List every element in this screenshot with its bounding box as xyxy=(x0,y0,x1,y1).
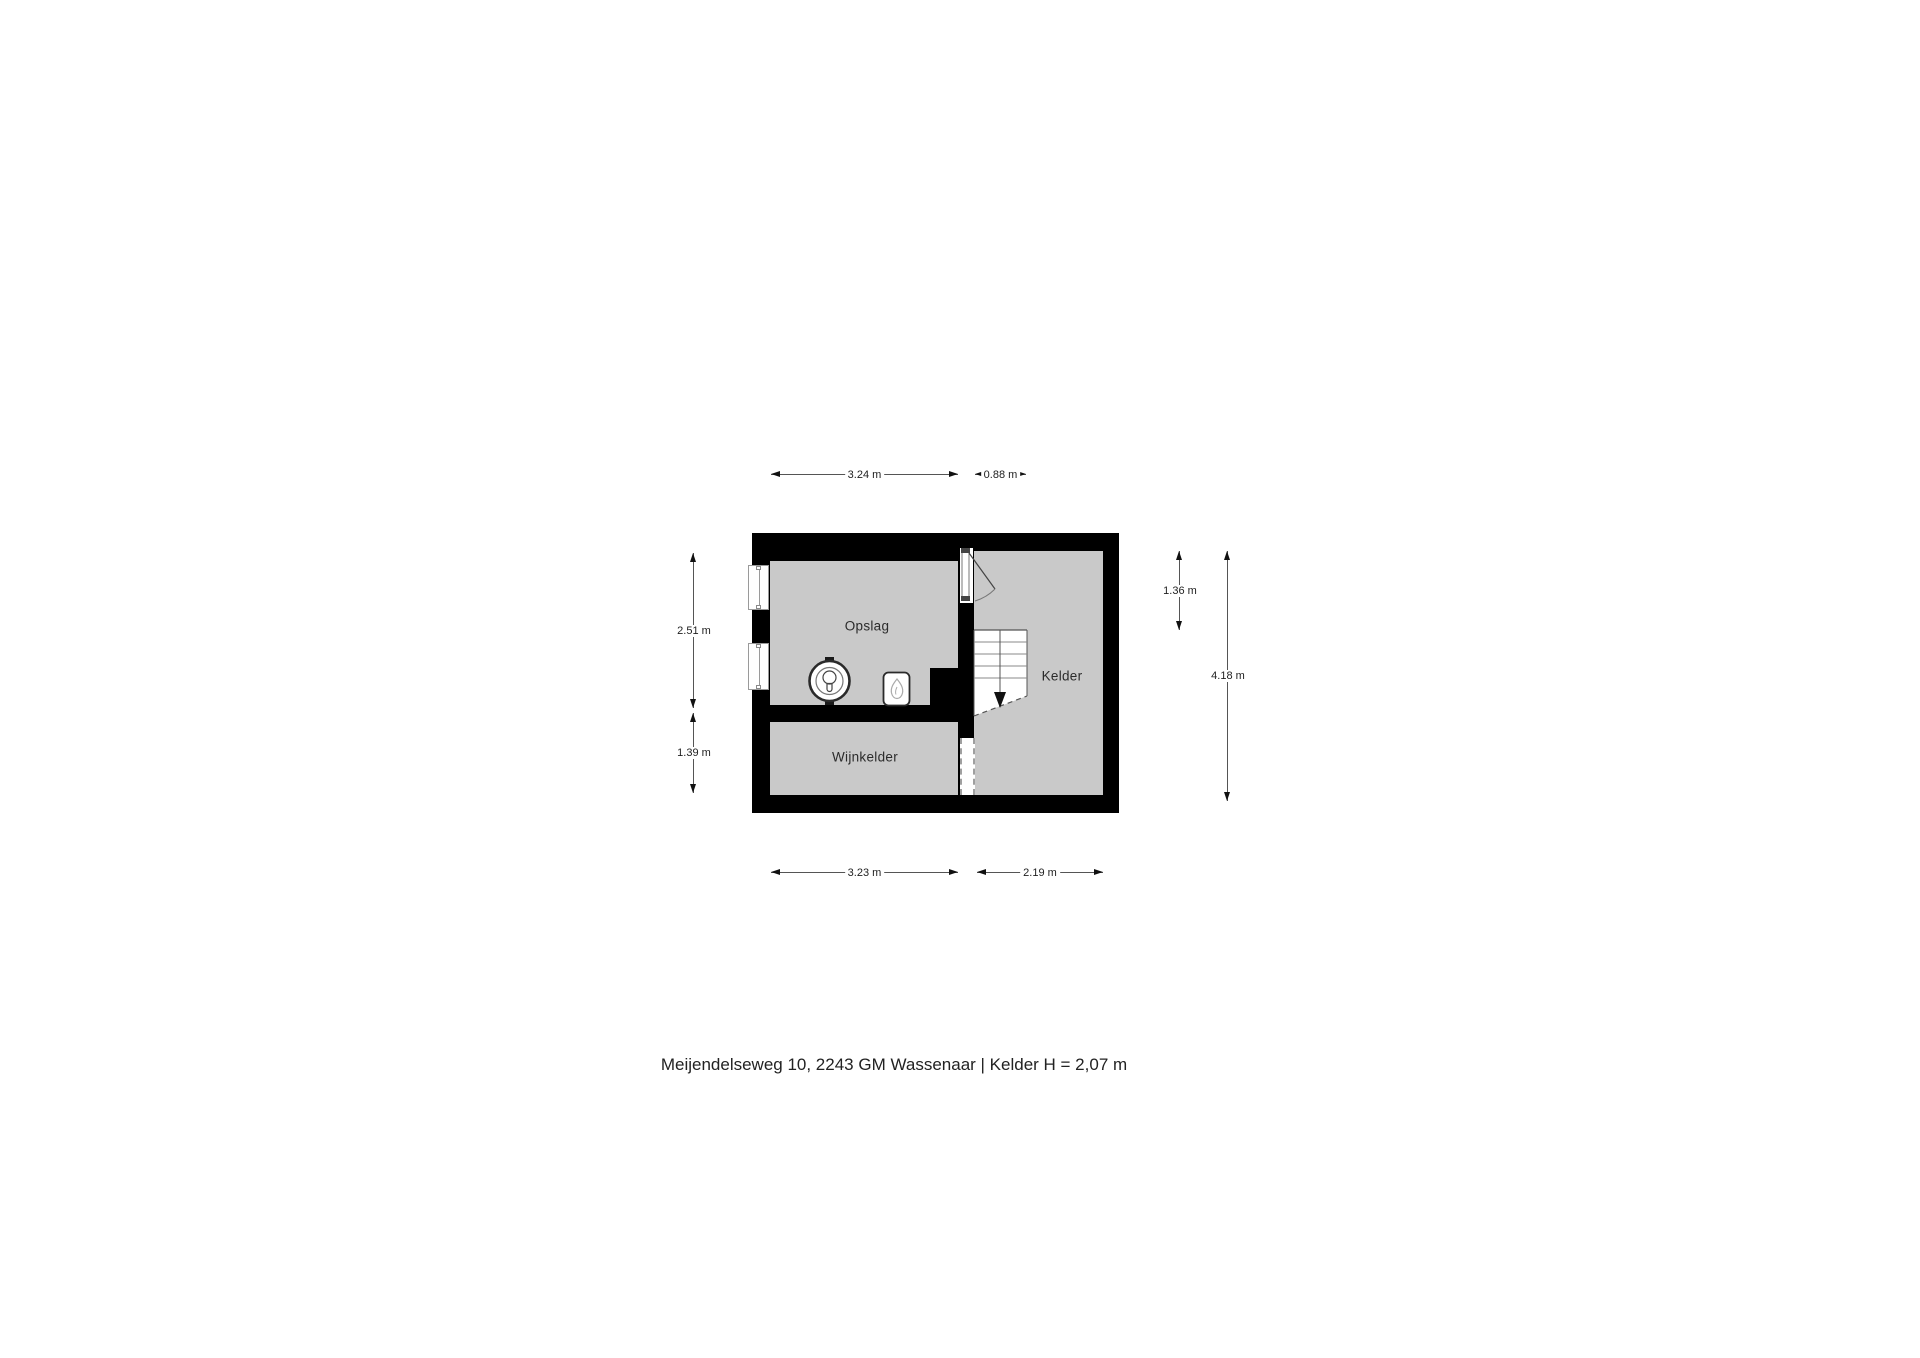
window-icon xyxy=(748,565,769,610)
staircase-down-icon xyxy=(972,626,1032,726)
floorplan-canvas: Opslag Kelder Wijnkelder 3.24 m 0.88 m 3… xyxy=(0,0,1920,1358)
dimension-right-landing: 1.36 m xyxy=(1179,551,1180,630)
arrow-down-icon xyxy=(1224,792,1230,801)
arrow-left-icon xyxy=(977,869,986,875)
dimension-top-opslag: 3.24 m xyxy=(771,474,958,475)
boiler-icon xyxy=(806,656,854,706)
arrow-right-icon xyxy=(949,471,958,477)
arrow-right-icon xyxy=(1094,869,1103,875)
arrow-up-icon xyxy=(690,553,696,562)
arrow-down-icon xyxy=(690,699,696,708)
room-label-kelder: Kelder xyxy=(1042,669,1083,684)
arrow-up-icon xyxy=(690,713,696,722)
arrow-up-icon xyxy=(1224,551,1230,560)
room-label-opslag: Opslag xyxy=(845,619,890,634)
arrow-right-icon xyxy=(949,869,958,875)
dimension-bottom-kelder: 2.19 m xyxy=(977,872,1103,873)
dimension-top-stairs: 0.88 m xyxy=(975,474,1026,475)
arrow-left-icon xyxy=(771,471,780,477)
arrow-up-icon xyxy=(1176,551,1182,560)
cv-ketel-flame-icon xyxy=(882,671,912,707)
door-swing-icon xyxy=(956,546,1026,608)
arrow-down-icon xyxy=(690,784,696,793)
room-label-wijnkelder: Wijnkelder xyxy=(832,750,898,765)
dimension-bottom-wijnkelder: 3.23 m xyxy=(771,872,958,873)
dimension-left-wijnkelder: 1.39 m xyxy=(693,713,694,793)
interior-wall-stub xyxy=(930,668,958,705)
arrow-down-icon xyxy=(1176,621,1182,630)
dimension-right-kelder: 4.18 m xyxy=(1227,551,1228,801)
open-passage xyxy=(960,738,975,795)
arrow-left-icon xyxy=(771,869,780,875)
dimension-left-opslag: 2.51 m xyxy=(693,553,694,708)
window-icon xyxy=(748,643,769,690)
address-caption: Meijendelseweg 10, 2243 GM Wassenaar | K… xyxy=(661,1055,1127,1075)
